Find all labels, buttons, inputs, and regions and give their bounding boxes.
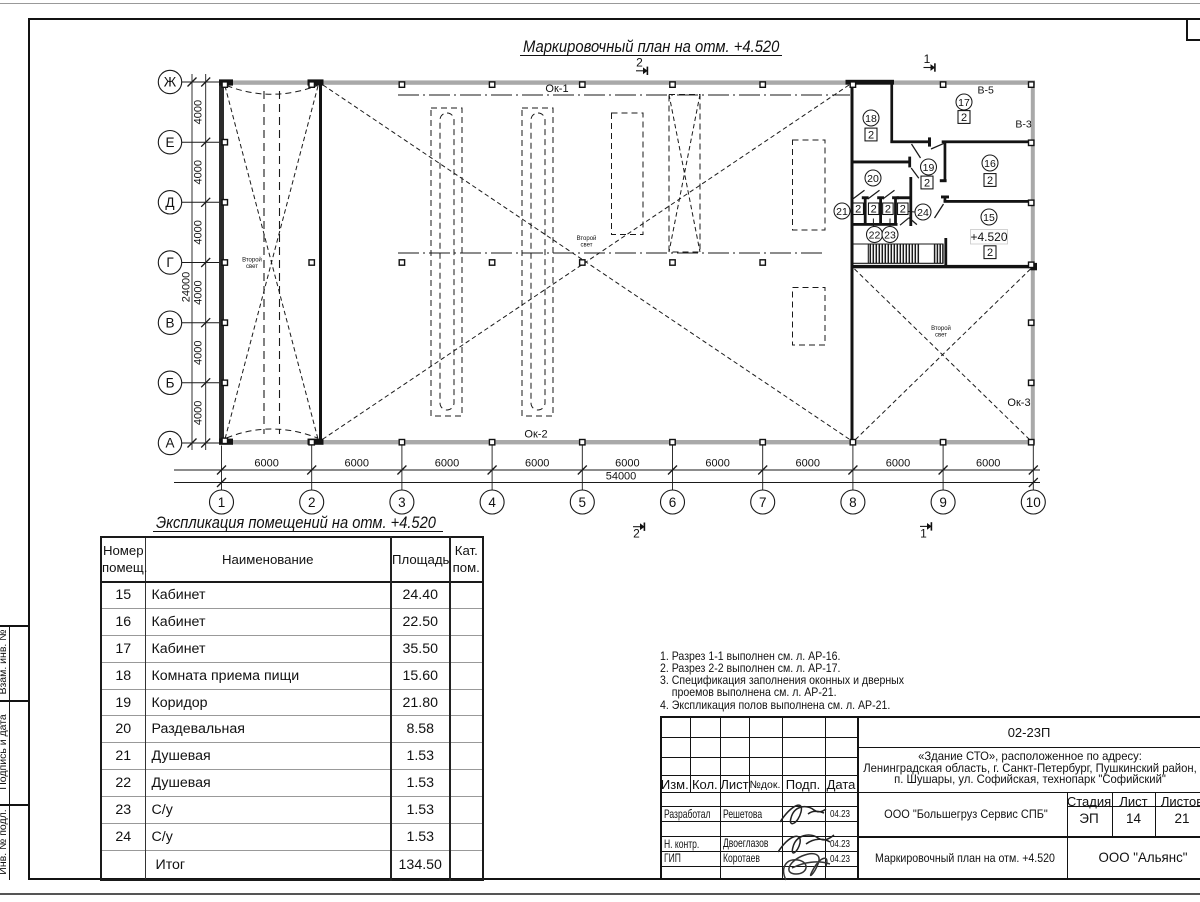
svg-text:21: 21: [836, 206, 848, 218]
svg-text:Б: Б: [166, 376, 175, 391]
svg-text:4: 4: [488, 495, 496, 510]
svg-text:2: 2: [885, 204, 891, 216]
svg-text:Ок-1: Ок-1: [545, 83, 568, 95]
svg-text:19: 19: [923, 162, 935, 174]
svg-text:В-5: В-5: [978, 84, 995, 96]
svg-text:2: 2: [924, 178, 930, 190]
svg-text:+4.520: +4.520: [970, 230, 1007, 244]
svg-text:свет: свет: [580, 243, 592, 249]
svg-text:2: 2: [636, 56, 643, 70]
svg-text:1: 1: [920, 526, 927, 540]
svg-text:24000: 24000: [181, 272, 193, 303]
svg-text:6000: 6000: [705, 458, 729, 470]
svg-text:16: 16: [984, 158, 996, 170]
svg-text:17: 17: [958, 97, 970, 109]
svg-text:23: 23: [884, 229, 896, 241]
svg-text:15: 15: [983, 212, 995, 224]
svg-text:Ж: Ж: [164, 75, 177, 90]
svg-text:свет: свет: [935, 333, 947, 339]
svg-text:6000: 6000: [796, 458, 820, 470]
svg-text:6000: 6000: [435, 458, 459, 470]
svg-text:6000: 6000: [615, 458, 639, 470]
svg-text:24: 24: [917, 207, 929, 219]
svg-text:Второй: Второй: [931, 325, 951, 332]
svg-text:4000: 4000: [192, 100, 204, 124]
svg-text:Е: Е: [165, 135, 174, 150]
svg-text:3: 3: [398, 495, 406, 510]
svg-text:4000: 4000: [192, 401, 204, 425]
svg-text:Ок-3: Ок-3: [1007, 397, 1030, 409]
svg-text:2: 2: [987, 175, 993, 187]
svg-text:4000: 4000: [192, 160, 204, 184]
svg-text:4000: 4000: [192, 341, 204, 365]
svg-text:Второй: Второй: [577, 235, 597, 242]
svg-text:9: 9: [939, 495, 947, 510]
svg-text:8: 8: [849, 495, 857, 510]
svg-text:6000: 6000: [886, 458, 910, 470]
svg-text:22: 22: [869, 229, 881, 241]
svg-text:4000: 4000: [192, 220, 204, 244]
svg-text:Второй: Второй: [242, 257, 262, 264]
svg-text:2: 2: [633, 527, 640, 541]
svg-text:20: 20: [867, 173, 879, 185]
svg-text:В-3: В-3: [1015, 118, 1032, 130]
svg-text:6: 6: [669, 495, 677, 510]
svg-text:2: 2: [871, 204, 877, 216]
svg-text:6000: 6000: [976, 458, 1000, 470]
svg-text:6000: 6000: [345, 458, 369, 470]
svg-text:2: 2: [855, 204, 861, 216]
svg-text:7: 7: [759, 495, 767, 510]
svg-text:Г: Г: [166, 255, 174, 270]
svg-text:54000: 54000: [606, 471, 637, 483]
svg-text:Д: Д: [165, 195, 174, 210]
svg-text:2: 2: [868, 130, 874, 142]
svg-text:1: 1: [218, 495, 226, 510]
svg-text:4000: 4000: [192, 280, 204, 304]
svg-text:5: 5: [579, 495, 587, 510]
svg-text:6000: 6000: [525, 458, 549, 470]
svg-text:свет: свет: [246, 264, 258, 270]
svg-text:2: 2: [308, 495, 316, 510]
svg-text:18: 18: [865, 113, 877, 125]
svg-text:2: 2: [900, 204, 906, 216]
svg-text:2: 2: [961, 112, 967, 124]
svg-text:В: В: [165, 315, 174, 330]
svg-text:2: 2: [987, 247, 993, 259]
svg-text:10: 10: [1026, 495, 1041, 510]
svg-text:6000: 6000: [254, 458, 278, 470]
svg-text:А: А: [165, 436, 174, 451]
svg-text:1: 1: [924, 52, 931, 66]
svg-text:Ок-2: Ок-2: [524, 429, 547, 441]
